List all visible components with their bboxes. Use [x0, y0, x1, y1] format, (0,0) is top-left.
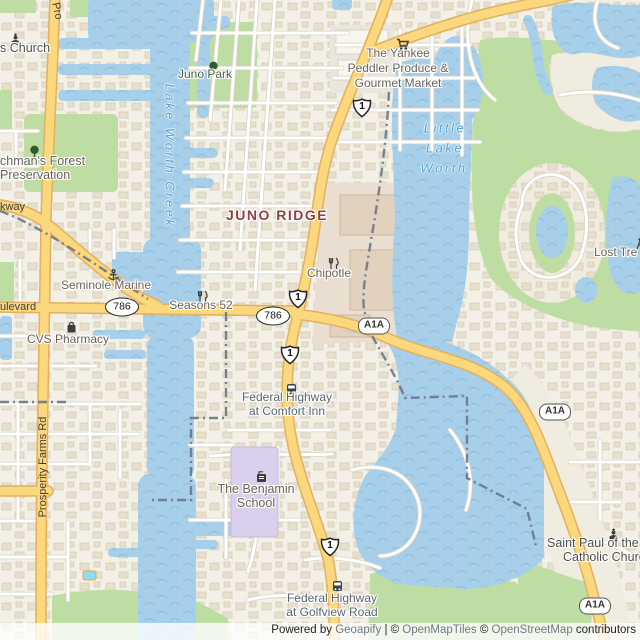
attribution-text: Powered by — [271, 624, 335, 636]
a1a-shield: A1A — [579, 598, 611, 615]
label-little-lake-worth: Little — [424, 121, 466, 136]
attribution-text: © — [477, 624, 492, 636]
label-little-lake-worth: Worth — [420, 161, 467, 176]
label-benjamin-school: School — [237, 496, 275, 510]
label-forest-preservation: Preservation — [0, 168, 70, 182]
attribution-text: | © — [381, 624, 402, 636]
label-benjamin-school: The Benjamin — [217, 482, 294, 496]
label-saint-paul-church: Catholic Churc — [563, 550, 640, 564]
attribution-bar: Powered by Geoapify | © OpenMapTiles © O… — [0, 623, 640, 640]
label-cvs-pharmacy: CVS Pharmacy — [27, 332, 109, 346]
label-comfort-inn-stop: at Comfort Inn — [249, 404, 325, 418]
openstreetmap-link[interactable]: OpenStreetMap — [492, 624, 573, 636]
label-little-lake-worth: Lake — [426, 141, 464, 156]
label-yankee-peddler: Gourmet Market — [355, 76, 442, 90]
a1a-shield: A1A — [539, 404, 571, 421]
label-prosperity-farms-rd: Prosperity Farms Rd — [37, 417, 49, 518]
label-lake-worth-creek: Lake Worth Creek — [163, 84, 178, 229]
sr786-shield: 786 — [256, 307, 290, 326]
label-saint-paul-church: Saint Paul of the C — [547, 536, 640, 550]
map-canvas[interactable]: 1 1 1 1 786 786 A1A A1A A1A s Church Jun… — [0, 0, 640, 640]
label-yankee-peddler: Peddler Produce & — [348, 61, 449, 75]
sr786-shield: 786 — [105, 298, 139, 317]
label-golfview-stop: Federal Highway — [287, 591, 377, 605]
label-church-partial: s Church — [0, 41, 50, 55]
a1a-shield: A1A — [358, 318, 390, 335]
label-comfort-inn-stop: Federal Highway — [242, 390, 332, 404]
label-forest-preservation: chman's Forest — [0, 154, 85, 168]
label-golfview-stop: at Golfview Road — [286, 605, 377, 619]
geoapify-link[interactable]: Geoapify — [335, 624, 381, 636]
us1-shield: 1 — [351, 97, 373, 119]
label-seasons-52: Seasons 52 — [169, 298, 232, 312]
label-juno-ridge: JUNO RIDGE — [226, 207, 328, 223]
label-parkway-partial: kway — [0, 201, 25, 213]
label-lost-tree: Lost Tre — [594, 245, 637, 259]
attribution-text: contributors — [573, 624, 636, 636]
us1-shield: 1 — [319, 536, 341, 558]
us1-shield: 1 — [287, 288, 309, 310]
openmaptiles-link[interactable]: OpenMapTiles — [402, 624, 476, 636]
label-juno-park: Juno Park — [178, 67, 232, 81]
us1-shield: 1 — [279, 344, 301, 366]
label-seminole-marine: Seminole Marine — [61, 278, 151, 292]
label-boulevard-partial: ulevard — [0, 301, 36, 313]
label-yankee-peddler: The Yankee — [366, 46, 430, 60]
label-chipotle: Chipotle — [307, 266, 351, 280]
